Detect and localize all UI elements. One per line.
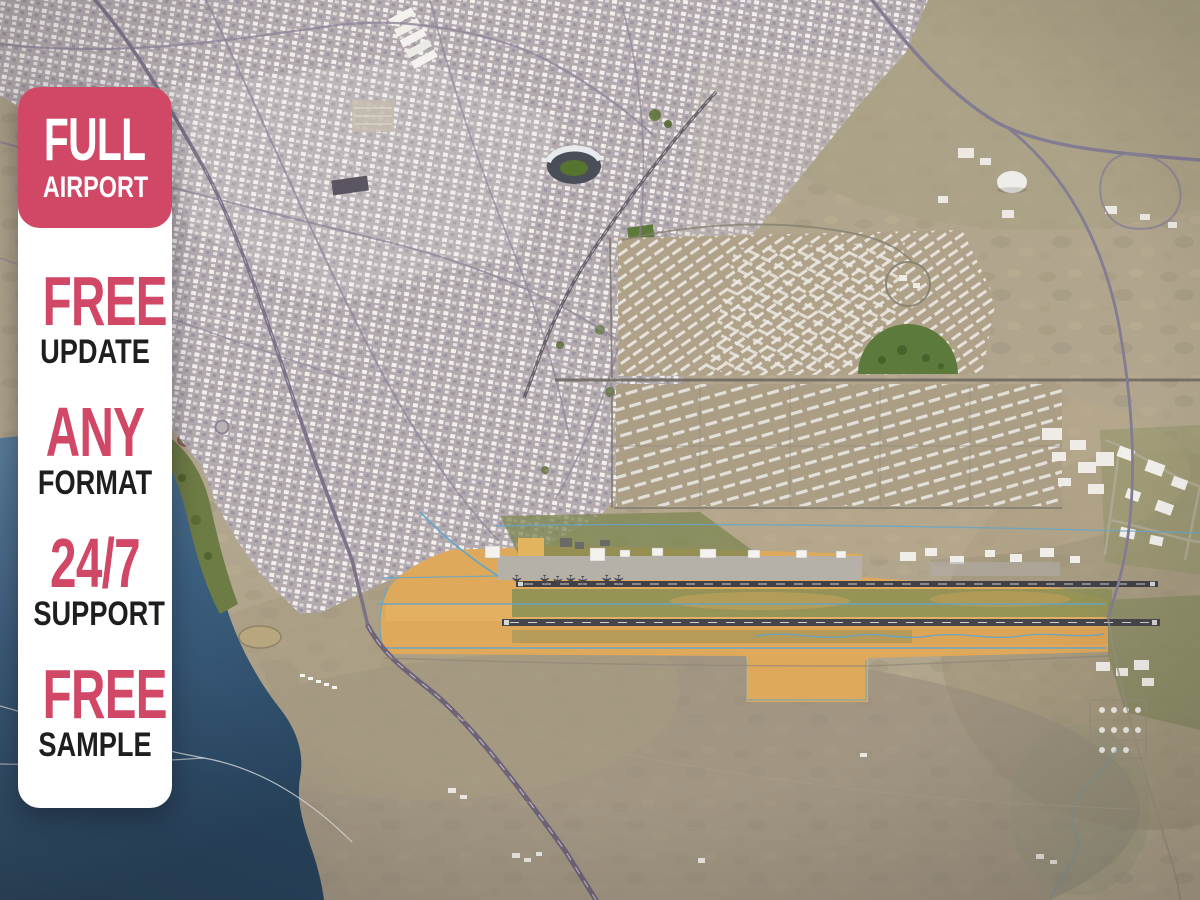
benefit-item-sample: FREE SAMPLE <box>18 661 172 763</box>
benefit-label: SAMPLE <box>33 728 156 762</box>
benefit-emphasis: ANY <box>43 399 148 466</box>
benefit-item-format: ANY FORMAT <box>18 399 172 501</box>
benefit-emphasis: 24/7 <box>43 530 148 597</box>
airport-city-aerial-map: ✈ ✈ ✈ ✈ ✈ ✈ ✈ <box>0 0 1200 900</box>
benefit-item-update: FREE UPDATE <box>18 268 172 370</box>
full-airport-badge: FULL AIRPORT <box>18 87 172 228</box>
benefit-emphasis: FREE <box>43 268 148 335</box>
benefit-label: UPDATE <box>33 335 156 369</box>
badge-line1: FULL <box>44 112 146 167</box>
product-image: ✈ ✈ ✈ ✈ ✈ ✈ ✈ <box>0 0 1200 900</box>
promo-card: FULL AIRPORT FREE UPDATE ANY FORMAT 24/7… <box>18 87 172 808</box>
benefit-label: FORMAT <box>33 466 156 500</box>
benefit-list: FREE UPDATE ANY FORMAT 24/7 SUPPORT FREE… <box>18 228 172 808</box>
vignette <box>0 0 1200 900</box>
benefit-emphasis: FREE <box>43 661 148 728</box>
benefit-label: SUPPORT <box>33 597 156 631</box>
benefit-item-support: 24/7 SUPPORT <box>18 530 172 632</box>
badge-line2: AIRPORT <box>42 173 147 203</box>
